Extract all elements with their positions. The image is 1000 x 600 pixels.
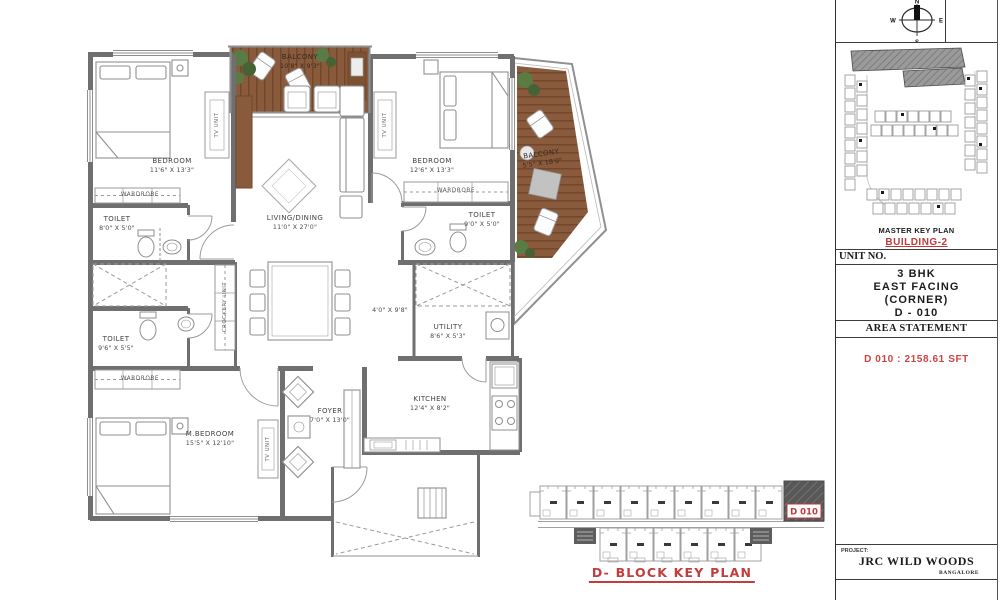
- unit-info-corner: (CORNER): [836, 294, 997, 307]
- room-name: LIVING/DINING: [267, 214, 323, 222]
- room-name: BEDROOM: [412, 157, 451, 165]
- room-dims: 11'6" X 13'3": [150, 167, 194, 176]
- highlight-unit-label: D 010: [790, 508, 818, 518]
- floorplan-sheet: D 010 BEDROOM 11'6" X 13'3" TOILET 8'0" …: [0, 0, 1000, 600]
- master-key-plan-section: MASTER KEY PLAN BUILDING-2: [836, 43, 997, 250]
- room-dims: 12'4" X 8'2": [410, 405, 450, 414]
- d-block-key-plan: D 010: [530, 481, 824, 562]
- unit-info-number: D - 010: [836, 307, 997, 320]
- room-dims: 7'0" X 13'0": [310, 417, 350, 426]
- room-label-utility: UTILITY 8'6" X 5'3": [430, 323, 466, 342]
- room-label-balcony-top: BALCONY 10'8" X 9'3": [280, 53, 320, 72]
- highlighted-unit: D 010: [784, 481, 824, 521]
- room-dims: 15'5" X 12'10": [186, 440, 234, 449]
- room-dims: 8'6" X 5'3": [430, 333, 466, 342]
- crockery-unit-label: CROCKERY UNIT: [222, 282, 228, 332]
- balcony-right: [513, 58, 606, 324]
- room-dims: 9'0" X 5'0": [464, 221, 500, 230]
- room-dims: 8'0" X 5'0": [99, 225, 135, 234]
- tv-unit-label-2: TV UNIT: [382, 112, 388, 137]
- room-label-bedroom-2: BEDROOM 12'6" X 13'3": [410, 157, 454, 176]
- room-label-master-bedroom: M.BEDROOM 15'5" X 12'10": [186, 430, 234, 449]
- room-label-foyer: FOYER 7'0" X 13'0": [310, 407, 350, 426]
- room-name: FOYER: [318, 407, 343, 415]
- room-name: TOILET: [103, 335, 130, 343]
- tv-unit-label-3: TV UNIT: [265, 436, 271, 461]
- master-key-plan-label: MASTER KEY PLAN: [836, 226, 997, 235]
- unit-info-type: 3 BHK: [836, 268, 997, 281]
- room-name: TOILET: [469, 211, 496, 219]
- unit-info-section: 3 BHK EAST FACING (CORNER) D - 010: [836, 265, 997, 321]
- master-key-plan-drawing: [841, 47, 993, 219]
- building-label: BUILDING-2: [836, 237, 997, 248]
- wardrobe-label-1: WARDROBE: [121, 192, 159, 198]
- room-name: M.BEDROOM: [186, 430, 234, 438]
- room-name: TOILET: [104, 215, 131, 223]
- room-label-toilet-3: TOILET 9'6" X 5'5": [98, 335, 134, 354]
- panel-empty-cell: [836, 580, 997, 600]
- room-label-toilet-1: TOILET 8'0" X 5'0": [99, 215, 135, 234]
- room-dims: 12'6" X 13'3": [410, 167, 454, 176]
- title-block-panel: N S W E: [835, 0, 998, 600]
- compass-section: N S W E: [836, 0, 997, 43]
- room-name: UTILITY: [434, 323, 463, 331]
- furniture: [96, 60, 508, 518]
- room-label-bedroom-1: BEDROOM 11'6" X 13'3": [150, 157, 194, 176]
- wardrobe-label-3: WARDROBE: [121, 376, 159, 382]
- compass-rose-icon: N S W E: [886, 0, 948, 43]
- compass-e: E: [939, 19, 943, 25]
- project-label: PROJECT:: [841, 548, 868, 554]
- wardrobe-label-2: WARDROBE: [437, 188, 475, 194]
- unit-no-row: UNIT NO.: [836, 250, 997, 265]
- room-label-toilet-2: TOILET 9'0" X 5'0": [464, 211, 500, 230]
- room-name: KITCHEN: [413, 395, 446, 403]
- area-statement-header: AREA STATEMENT: [836, 321, 997, 338]
- room-label-living-dining: LIVING/DINING 11'0" X 27'0": [267, 214, 323, 233]
- compass-n: N: [915, 0, 919, 6]
- project-name: JRC WILD WOODS: [836, 554, 997, 569]
- unit-info-facing: EAST FACING: [836, 281, 997, 294]
- compass-w: W: [890, 19, 896, 25]
- room-name: BALCONY: [282, 53, 318, 61]
- room-dims: 11'0" X 27'0": [267, 224, 323, 233]
- room-dims: 4'0" X 9'8": [372, 307, 408, 316]
- area-statement-value: D 010 : 2158.61 SFT: [836, 338, 997, 545]
- d-block-key-plan-title: D- BLOCK KEY PLAN: [589, 565, 755, 583]
- project-section: PROJECT: JRC WILD WOODS BANGALORE: [836, 545, 997, 580]
- room-dims: 10'8" X 9'3": [280, 63, 320, 72]
- room-dims: 9'6" X 5'5": [98, 345, 134, 354]
- tv-unit-label-1: TV UNIT: [214, 112, 220, 137]
- room-label-kitchen: KITCHEN 12'4" X 8'2": [410, 395, 450, 414]
- room-label-passage: 4'0" X 9'8": [372, 307, 408, 316]
- room-name: BEDROOM: [152, 157, 191, 165]
- project-city: BANGALORE: [939, 570, 979, 576]
